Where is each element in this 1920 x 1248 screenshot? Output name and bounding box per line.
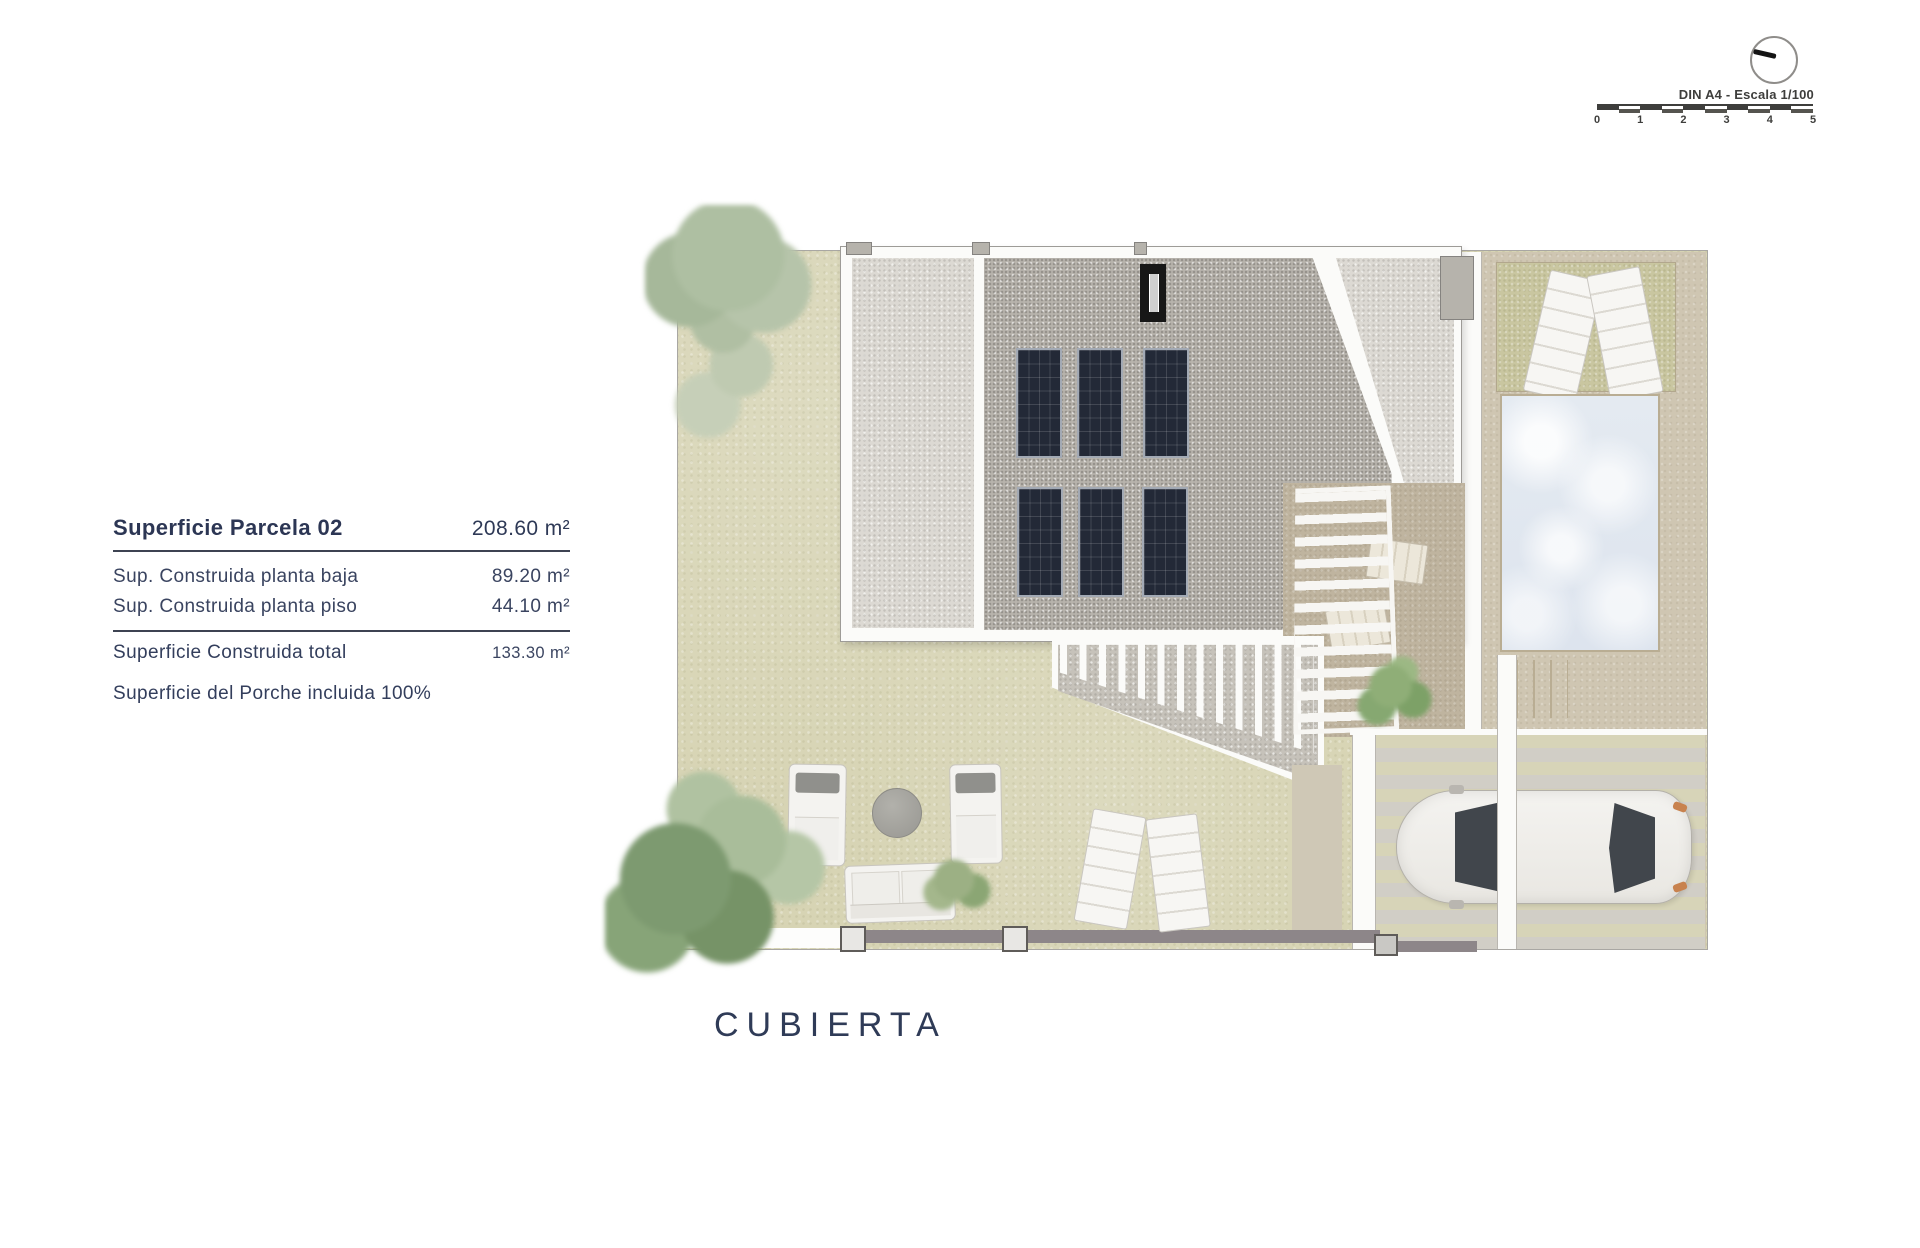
- roof-gravel-light-left: [852, 258, 974, 628]
- solar-panel: [1077, 348, 1123, 458]
- solar-panel: [1142, 487, 1188, 597]
- wall-post: [1134, 242, 1147, 255]
- solar-panel: [1143, 348, 1189, 458]
- car-rear-window: [1609, 803, 1655, 893]
- wall-post: [846, 242, 872, 255]
- wall-post: [972, 242, 990, 255]
- chimney: [1140, 264, 1166, 322]
- car: [1396, 790, 1692, 904]
- armchair-back-cushion: [955, 773, 995, 794]
- wall-pillar: [1440, 256, 1474, 320]
- tree: [1350, 650, 1440, 740]
- fence-post: [1002, 926, 1028, 952]
- slat-wedge: [1052, 636, 1324, 792]
- tree: [605, 755, 840, 980]
- swimming-pool: [1500, 394, 1660, 652]
- car-mirror: [1449, 785, 1464, 794]
- fence-post: [840, 926, 866, 952]
- car-mirror: [1449, 900, 1464, 909]
- pool-steps: [1516, 660, 1568, 718]
- solar-panel: [1016, 348, 1062, 458]
- carport-beam: [1497, 655, 1517, 949]
- solar-panel: [1017, 487, 1063, 597]
- solar-panel: [1078, 487, 1124, 597]
- sofa-cushion: [851, 871, 900, 907]
- fence: [850, 930, 1380, 943]
- caption-cubierta: CUBIERTA: [714, 1006, 947, 1045]
- site-plan: [0, 0, 1920, 1248]
- bush: [916, 842, 1000, 926]
- garden-path: [1292, 765, 1342, 930]
- driveway-wall: [1352, 735, 1376, 949]
- garden-table: [872, 788, 922, 838]
- chimney-flue: [1149, 274, 1159, 312]
- roof-plan-sheet: DIN A4 - Escala 1/100 0 1 2 3 4 5 Superf…: [0, 0, 1920, 1248]
- gate-post: [1374, 934, 1398, 956]
- tree: [645, 205, 830, 455]
